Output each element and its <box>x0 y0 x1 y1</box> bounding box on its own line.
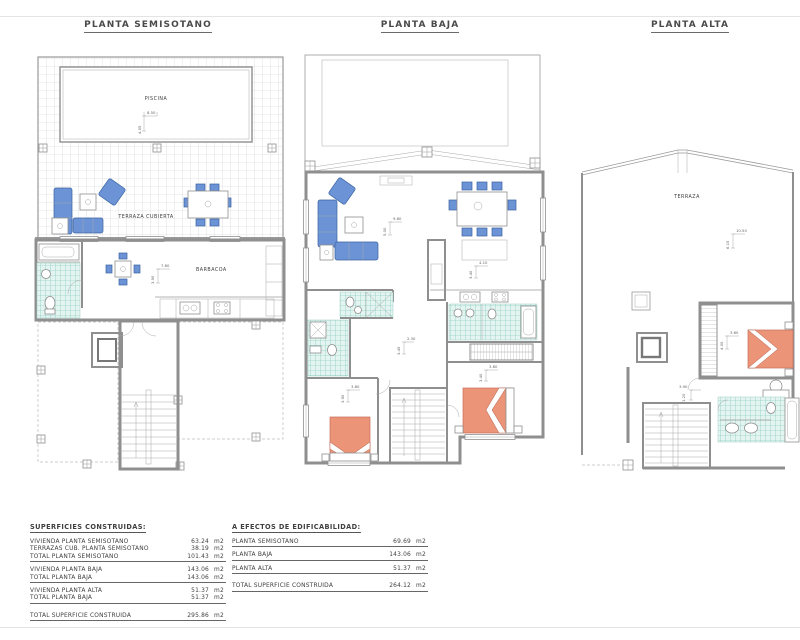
table-row: VIVIENDA PLANTA BAJA 143.06m2 <box>30 567 226 574</box>
cocina-width-dim: 4.10 <box>479 260 488 265</box>
alta-stairs <box>643 403 710 468</box>
sheet-bottom-edge <box>0 627 800 628</box>
table-row: TERRAZAS CUB. PLANTA SEMISOTANO 38.19m2 <box>30 546 226 553</box>
terraza-width-dim: 10.50 <box>736 228 747 233</box>
dorm-width-dim: 3.60 <box>730 330 739 335</box>
semisotano-lower <box>37 321 283 470</box>
table-row-total: TOTAL PLANTA BAJA 51.37m2 <box>30 595 226 603</box>
plan-semisotano-drawing: PISCINA 8.50 4.05 TERRAZA CUBIERTA <box>30 50 290 475</box>
cocina-height-dim: 3.40 <box>468 270 473 279</box>
sheet-top-edge <box>0 16 800 17</box>
baja-pool-projection <box>305 55 540 172</box>
table-edificabilidad-title: A EFECTOS DE EDIFICABILIDAD: <box>232 523 361 533</box>
table-row: VIVIENDA PLANTA ALTA 51.37m2 <box>30 588 226 595</box>
pool-height-dim: 4.05 <box>137 125 142 134</box>
terraza-label: TERRAZA <box>673 194 700 200</box>
table-row-grand-total: TOTAL SUPERFICIE CONSTRUIDA 295.86m2 <box>30 613 226 621</box>
table-row-total: TOTAL PLANTA BAJA 143.06m2 <box>30 575 226 583</box>
piscina-label: PISCINA <box>145 96 168 102</box>
barbacoa-label: BARBACOA <box>196 267 227 273</box>
alta-bedroom: 3.60 4.00 <box>688 303 793 400</box>
table-row-grand-total: TOTAL SUPERFICIE CONSTRUIDA 264.12m2 <box>232 583 428 591</box>
floor-plan-sheet: PLANTA SEMISOTANO PLANTA BAJA PLANTA ALT… <box>0 0 800 640</box>
title-planta-baja: PLANTA BAJA <box>330 20 510 33</box>
plan-alta-drawing: TERRAZA 10.50 6.15 3.60 4.00 <box>575 140 800 475</box>
pool-width-dim: 8.50 <box>147 110 156 115</box>
alta-bathroom <box>718 397 799 442</box>
salon-width-dim: 9.80 <box>393 216 402 221</box>
baja-stairs <box>376 380 447 463</box>
table-superficies: SUPERFICIES CONSTRUIDAS: VIVIENDA PLANTA… <box>30 514 226 621</box>
pasillo-height-dim: 3.45 <box>396 346 401 355</box>
salon-height-dim: 3.90 <box>150 275 155 284</box>
dorm2-height-dim: 3.40 <box>478 373 483 382</box>
dorm1-height-dim: 3.90 <box>340 394 345 403</box>
pasillo-width-dim: 2.30 <box>407 336 416 341</box>
baja-kitchen: 4.10 3.40 <box>428 240 543 302</box>
pool-terrace: PISCINA 8.50 4.05 <box>38 57 283 240</box>
dorm-height-dim: 4.00 <box>719 341 724 350</box>
semisotano-interior: BARBACOA 7.80 3.90 <box>36 240 284 320</box>
dorm2-width-dim: 3.80 <box>489 364 498 369</box>
terraza-cubierta-label: TERRAZA CUBIERTA <box>117 214 173 220</box>
table-edificabilidad: A EFECTOS DE EDIFICABILIDAD: PLANTA SEMI… <box>232 514 428 592</box>
salon-height-dim: 5.00 <box>382 227 387 236</box>
table-superficies-title: SUPERFICIES CONSTRUIDAS: <box>30 523 146 533</box>
terraza-height-dim: 6.15 <box>725 240 730 249</box>
table-row: PLANTA SEMISOTANO 69.69m2 <box>232 539 428 547</box>
pasillo-width-dim: 3.90 <box>679 384 688 389</box>
plan-baja-drawing: 9.80 5.00 4.10 3.40 <box>300 50 550 475</box>
table-row: PLANTA ALTA 51.37m2 <box>232 566 428 574</box>
title-planta-semisotano: PLANTA SEMISOTANO <box>58 20 238 33</box>
pasillo-height-dim: 1.20 <box>681 393 686 402</box>
baja-living-furniture: 9.80 5.00 <box>318 176 516 260</box>
salon-width-dim: 7.80 <box>161 263 170 268</box>
title-planta-alta: PLANTA ALTA <box>600 20 780 33</box>
table-row: PLANTA BAJA 143.06m2 <box>232 552 428 560</box>
table-row: VIVIENDA PLANTA SEMISOTANO 63.24m2 <box>30 539 226 546</box>
dorm1-width-dim: 3.80 <box>351 384 360 389</box>
table-row-total: TOTAL PLANTA SEMISOTANO 101.43m2 <box>30 554 226 562</box>
